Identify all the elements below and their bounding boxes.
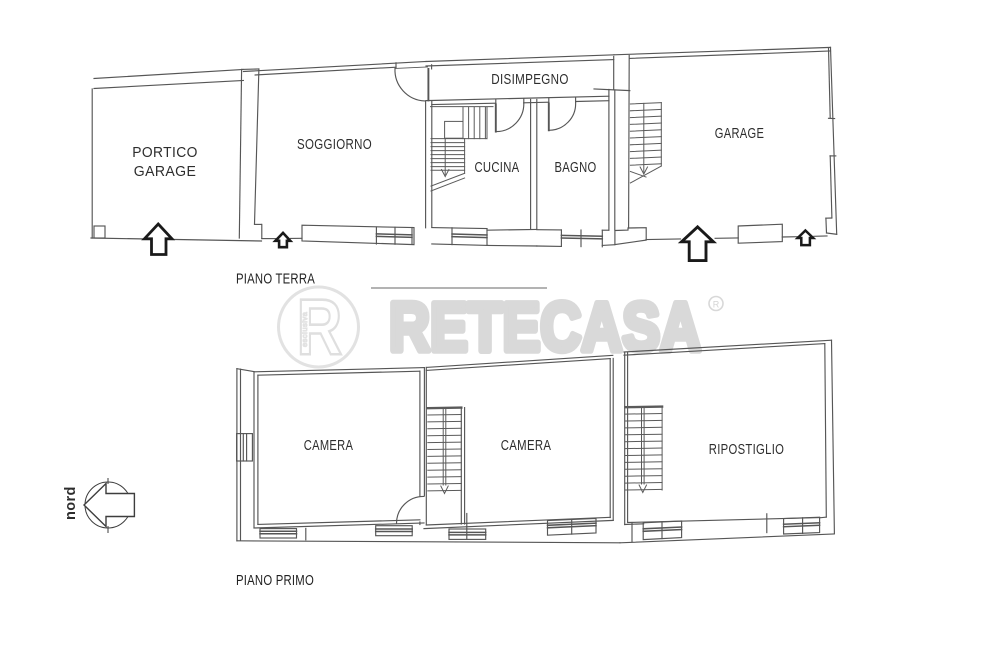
svg-text:GARAGE: GARAGE [134, 164, 197, 180]
svg-text:CUCINA: CUCINA [475, 160, 520, 176]
svg-text:R: R [713, 300, 720, 310]
svg-text:GARAGE: GARAGE [715, 126, 765, 142]
svg-text:esclusiva: esclusiva [300, 311, 309, 347]
svg-text:SOGGIORNO: SOGGIORNO [297, 137, 372, 153]
svg-text:RIPOSTIGLIO: RIPOSTIGLIO [709, 442, 785, 458]
svg-text:PIANO TERRA: PIANO TERRA [236, 271, 315, 288]
svg-text:CAMERA: CAMERA [304, 438, 354, 454]
svg-text:PIANO PRIMO: PIANO PRIMO [236, 572, 314, 589]
svg-text:CAMERA: CAMERA [501, 438, 552, 454]
svg-text:DISIMPEGNO: DISIMPEGNO [491, 72, 569, 88]
svg-text:nord: nord [63, 486, 79, 520]
svg-text:BAGNO: BAGNO [555, 160, 597, 176]
svg-text:PORTICO: PORTICO [132, 145, 198, 161]
